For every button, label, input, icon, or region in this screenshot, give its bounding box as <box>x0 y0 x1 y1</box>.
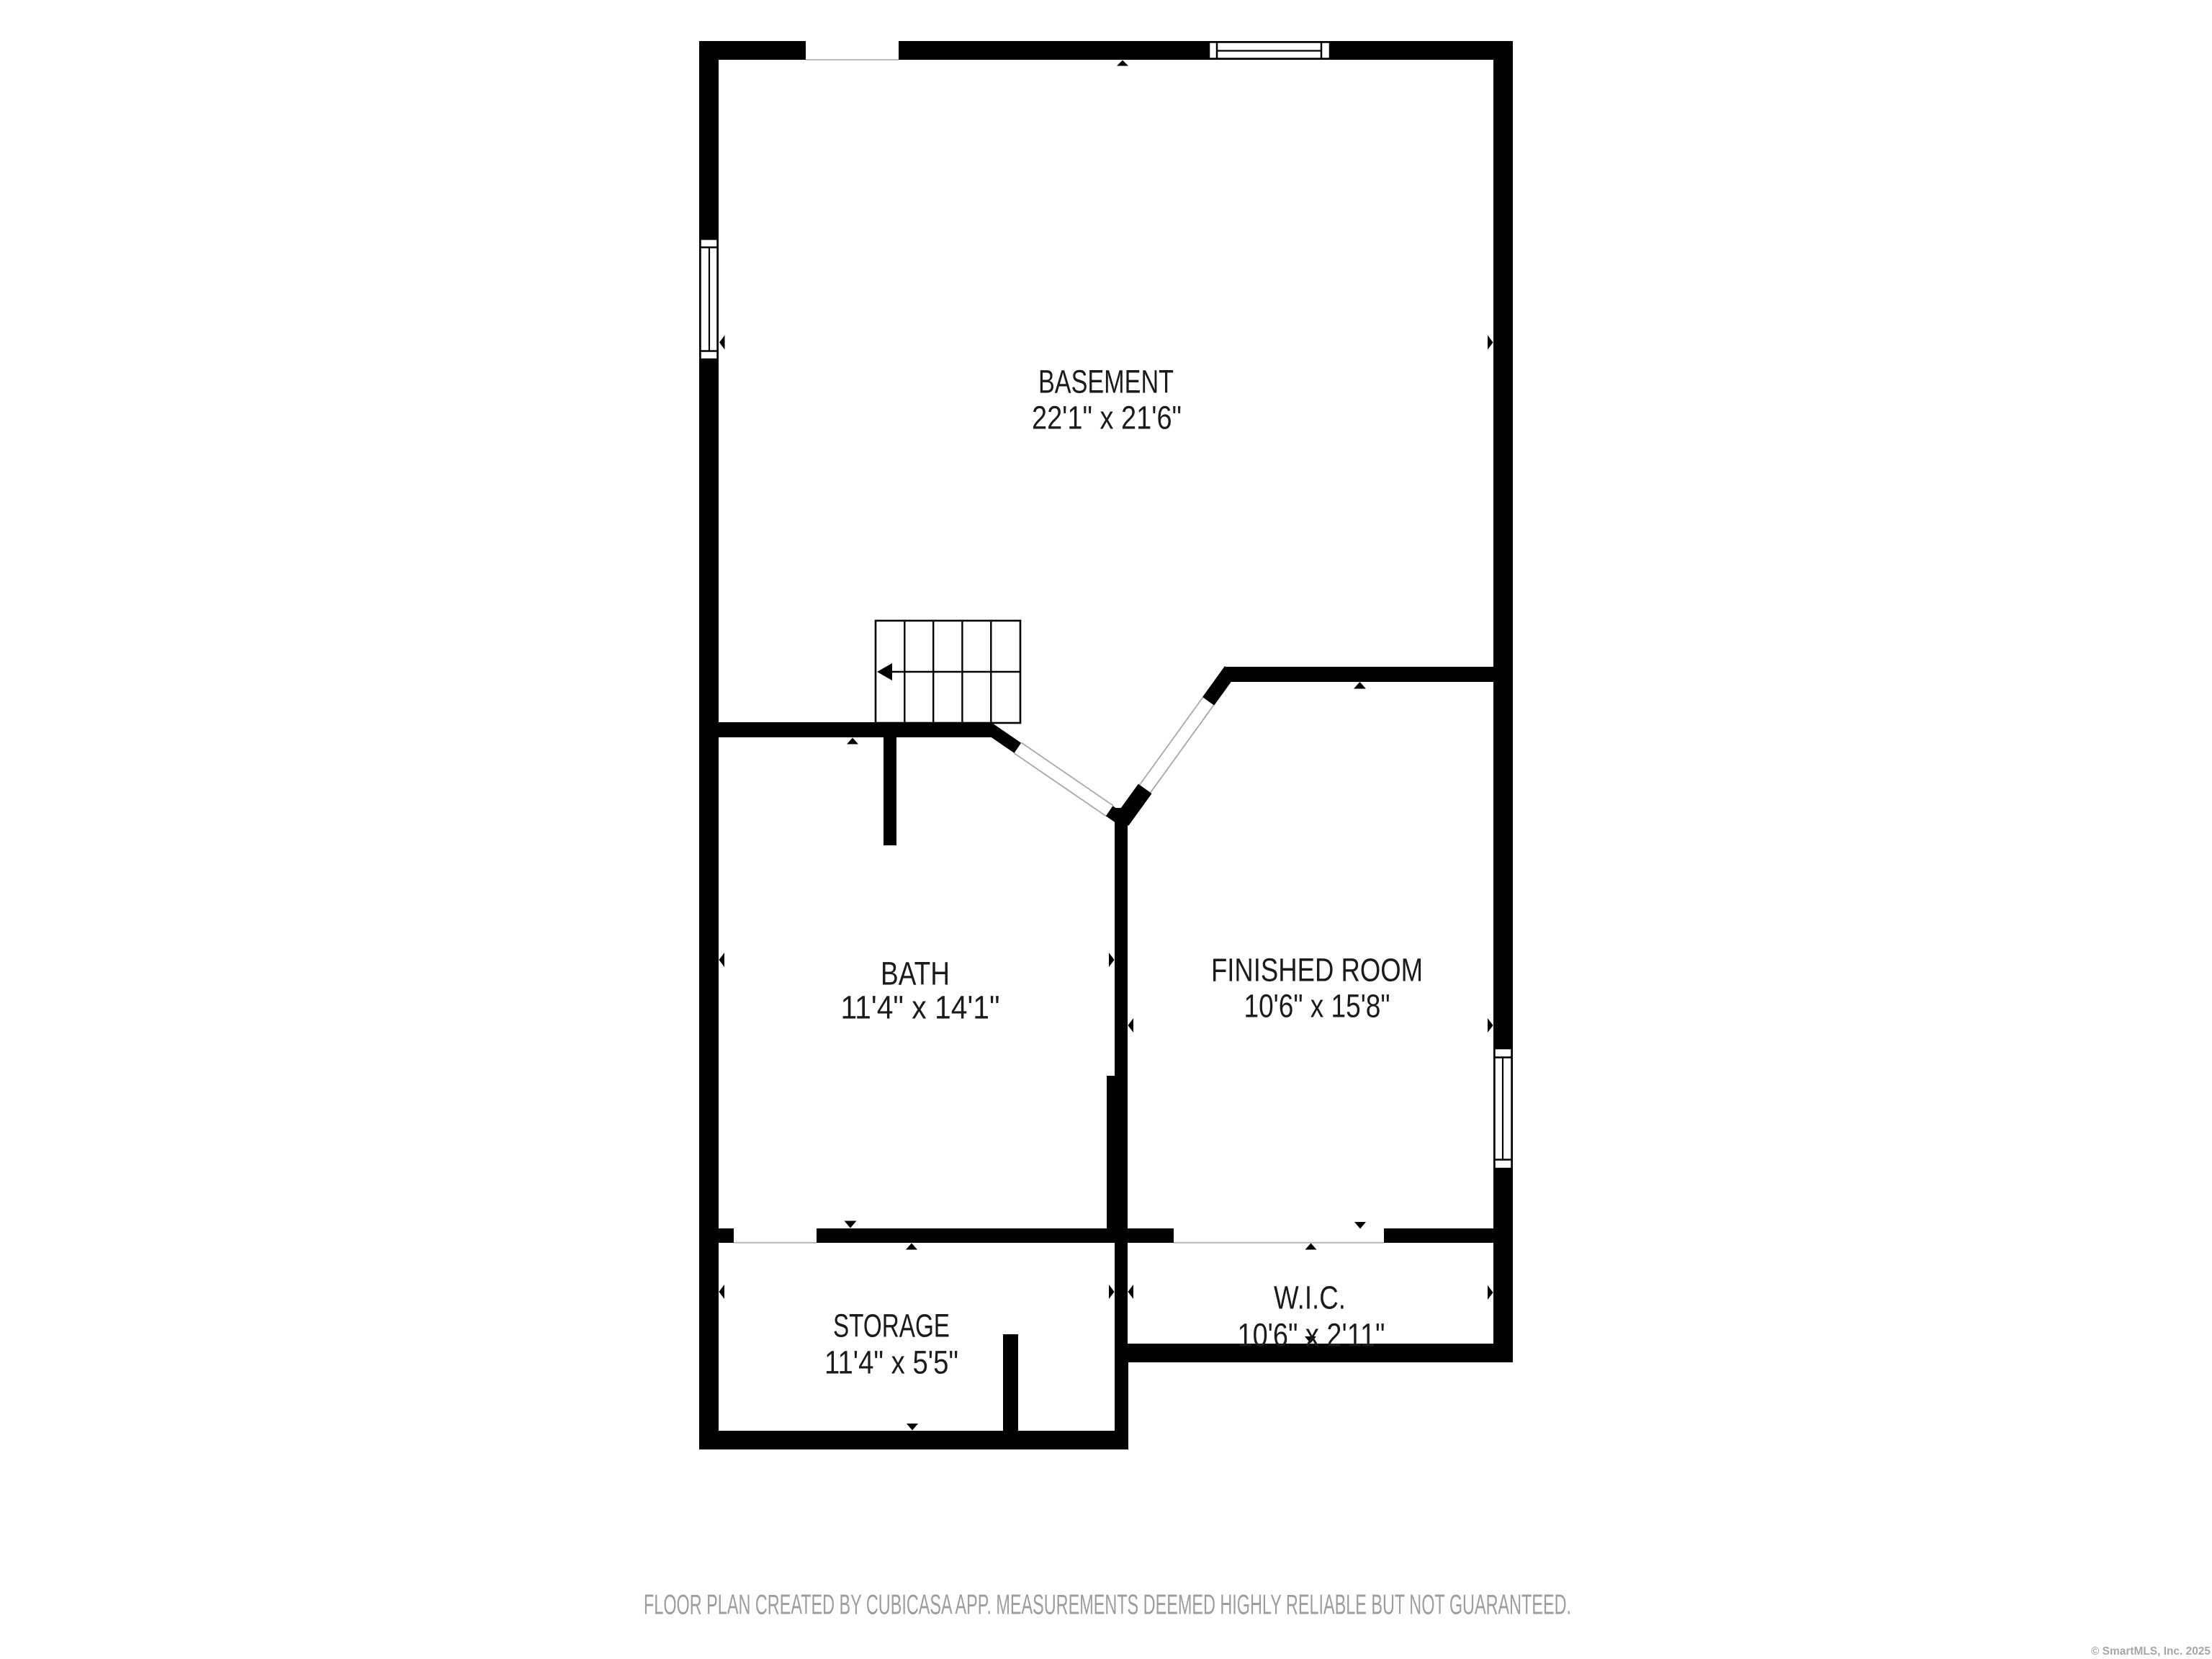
svg-text:22'1" x 21'6": 22'1" x 21'6" <box>1032 400 1182 436</box>
svg-text:STORAGE: STORAGE <box>833 1308 950 1344</box>
svg-text:BASEMENT: BASEMENT <box>1038 364 1174 400</box>
svg-text:11'4" x 14'1": 11'4" x 14'1" <box>841 989 1000 1026</box>
svg-text:W.I.C.: W.I.C. <box>1274 1280 1346 1316</box>
svg-text:10'6" x 15'8": 10'6" x 15'8" <box>1244 988 1390 1025</box>
svg-text:© SmartMLS, Inc. 2025: © SmartMLS, Inc. 2025 <box>2091 1645 2211 1658</box>
svg-text:BATH: BATH <box>881 956 950 992</box>
svg-text:11'4" x 5'5": 11'4" x 5'5" <box>824 1344 958 1381</box>
svg-text:FLOOR PLAN CREATED BY CUBICASA: FLOOR PLAN CREATED BY CUBICASA APP. MEAS… <box>644 1590 1571 1621</box>
svg-text:FINISHED ROOM: FINISHED ROOM <box>1211 952 1423 989</box>
svg-text:10'6" x 2'11": 10'6" x 2'11" <box>1238 1317 1385 1354</box>
